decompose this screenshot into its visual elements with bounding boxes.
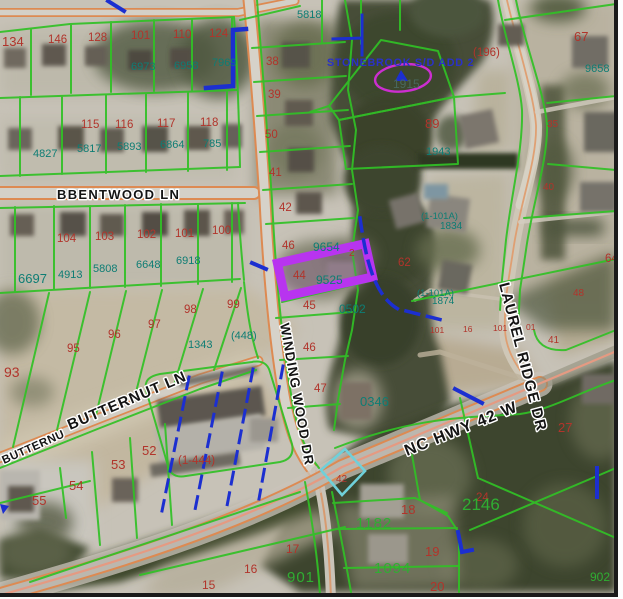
svg-text:902: 902 xyxy=(590,570,610,584)
svg-text:55: 55 xyxy=(32,493,46,508)
svg-text:39: 39 xyxy=(268,89,281,101)
svg-text:101: 101 xyxy=(430,325,444,335)
svg-text:6958: 6958 xyxy=(174,60,198,72)
svg-text:4913: 4913 xyxy=(58,269,82,281)
svg-text:116: 116 xyxy=(115,119,133,131)
svg-text:35: 35 xyxy=(547,119,559,130)
svg-text:46: 46 xyxy=(282,240,295,252)
svg-text:5817: 5817 xyxy=(77,143,101,155)
svg-text:6973: 6973 xyxy=(131,61,155,73)
svg-text:9658: 9658 xyxy=(585,63,609,75)
svg-text:1834: 1834 xyxy=(440,221,463,232)
svg-text:6864: 6864 xyxy=(160,139,184,151)
svg-text:27: 27 xyxy=(558,420,572,435)
svg-text:0346: 0346 xyxy=(360,394,389,409)
svg-text:44: 44 xyxy=(293,270,306,282)
svg-text:128: 128 xyxy=(88,32,107,44)
svg-text:(196): (196) xyxy=(473,47,500,59)
svg-text:67: 67 xyxy=(574,29,588,44)
svg-text:01: 01 xyxy=(526,322,536,332)
svg-text:101: 101 xyxy=(175,228,194,240)
svg-text:6918: 6918 xyxy=(176,255,200,267)
svg-text:(448): (448) xyxy=(231,330,257,342)
svg-text:103: 103 xyxy=(95,231,114,243)
svg-text:18: 18 xyxy=(401,502,415,517)
svg-text:1182: 1182 xyxy=(356,515,392,532)
svg-text:42: 42 xyxy=(336,474,348,485)
svg-text:117: 117 xyxy=(157,118,175,130)
svg-text:1943: 1943 xyxy=(426,146,450,158)
svg-text:19: 19 xyxy=(425,544,439,559)
svg-text:785: 785 xyxy=(203,138,221,150)
svg-text:2: 2 xyxy=(349,248,355,259)
svg-text:52: 52 xyxy=(142,443,156,458)
svg-text:6697: 6697 xyxy=(18,271,47,286)
svg-text:6648: 6648 xyxy=(136,259,160,271)
svg-text:97: 97 xyxy=(148,319,161,331)
svg-text:41: 41 xyxy=(269,167,282,179)
svg-text:62: 62 xyxy=(398,257,411,269)
svg-text:102: 102 xyxy=(137,229,156,241)
svg-text:16: 16 xyxy=(244,562,258,576)
svg-text:9654: 9654 xyxy=(313,240,340,254)
svg-text:54: 54 xyxy=(69,478,83,493)
svg-text:17: 17 xyxy=(286,542,300,556)
svg-text:1343: 1343 xyxy=(188,339,212,351)
svg-text:38: 38 xyxy=(266,56,279,68)
svg-text:101: 101 xyxy=(131,30,150,42)
svg-text:89: 89 xyxy=(425,116,439,131)
svg-text:16: 16 xyxy=(463,324,473,334)
svg-text:134: 134 xyxy=(2,34,24,49)
svg-text:9525: 9525 xyxy=(316,273,343,287)
svg-text:48: 48 xyxy=(573,288,585,299)
svg-text:95: 95 xyxy=(67,343,80,355)
svg-text:53: 53 xyxy=(111,457,125,472)
svg-text:7969: 7969 xyxy=(212,57,236,69)
svg-text:2146: 2146 xyxy=(462,495,500,514)
svg-text:5818: 5818 xyxy=(297,9,321,21)
svg-text:5893: 5893 xyxy=(117,141,141,153)
svg-text:50: 50 xyxy=(265,129,278,141)
svg-text:115: 115 xyxy=(81,119,99,131)
svg-text:4827: 4827 xyxy=(33,148,57,160)
svg-text:STONEBROOK S/D ADD 2: STONEBROOK S/D ADD 2 xyxy=(327,57,474,69)
svg-text:5808: 5808 xyxy=(93,263,117,275)
svg-text:40: 40 xyxy=(543,182,555,193)
svg-text:(1-444): (1-444) xyxy=(178,455,215,467)
svg-text:41: 41 xyxy=(548,335,560,346)
svg-text:15: 15 xyxy=(202,578,216,592)
svg-text:93: 93 xyxy=(4,364,20,380)
svg-text:100: 100 xyxy=(212,225,231,237)
svg-text:45: 45 xyxy=(303,300,316,312)
svg-text:1874: 1874 xyxy=(432,296,455,307)
svg-text:47: 47 xyxy=(314,383,327,395)
svg-text:146: 146 xyxy=(48,34,67,46)
svg-text:901: 901 xyxy=(287,569,315,586)
svg-text:124: 124 xyxy=(209,28,229,40)
svg-text:101: 101 xyxy=(493,323,507,333)
svg-text:20: 20 xyxy=(430,579,444,594)
svg-text:104: 104 xyxy=(57,233,77,245)
svg-text:0502: 0502 xyxy=(339,302,366,316)
svg-text:BBENTWOOD LN: BBENTWOOD LN xyxy=(57,187,180,202)
svg-text:99: 99 xyxy=(227,299,240,311)
svg-text:1094: 1094 xyxy=(374,560,411,577)
svg-text:42: 42 xyxy=(279,202,292,214)
svg-text:98: 98 xyxy=(184,304,197,316)
svg-text:118: 118 xyxy=(200,117,218,129)
svg-text:1915: 1915 xyxy=(393,77,420,91)
svg-text:96: 96 xyxy=(108,329,121,341)
svg-text:110: 110 xyxy=(173,29,191,41)
svg-text:46: 46 xyxy=(303,342,316,354)
